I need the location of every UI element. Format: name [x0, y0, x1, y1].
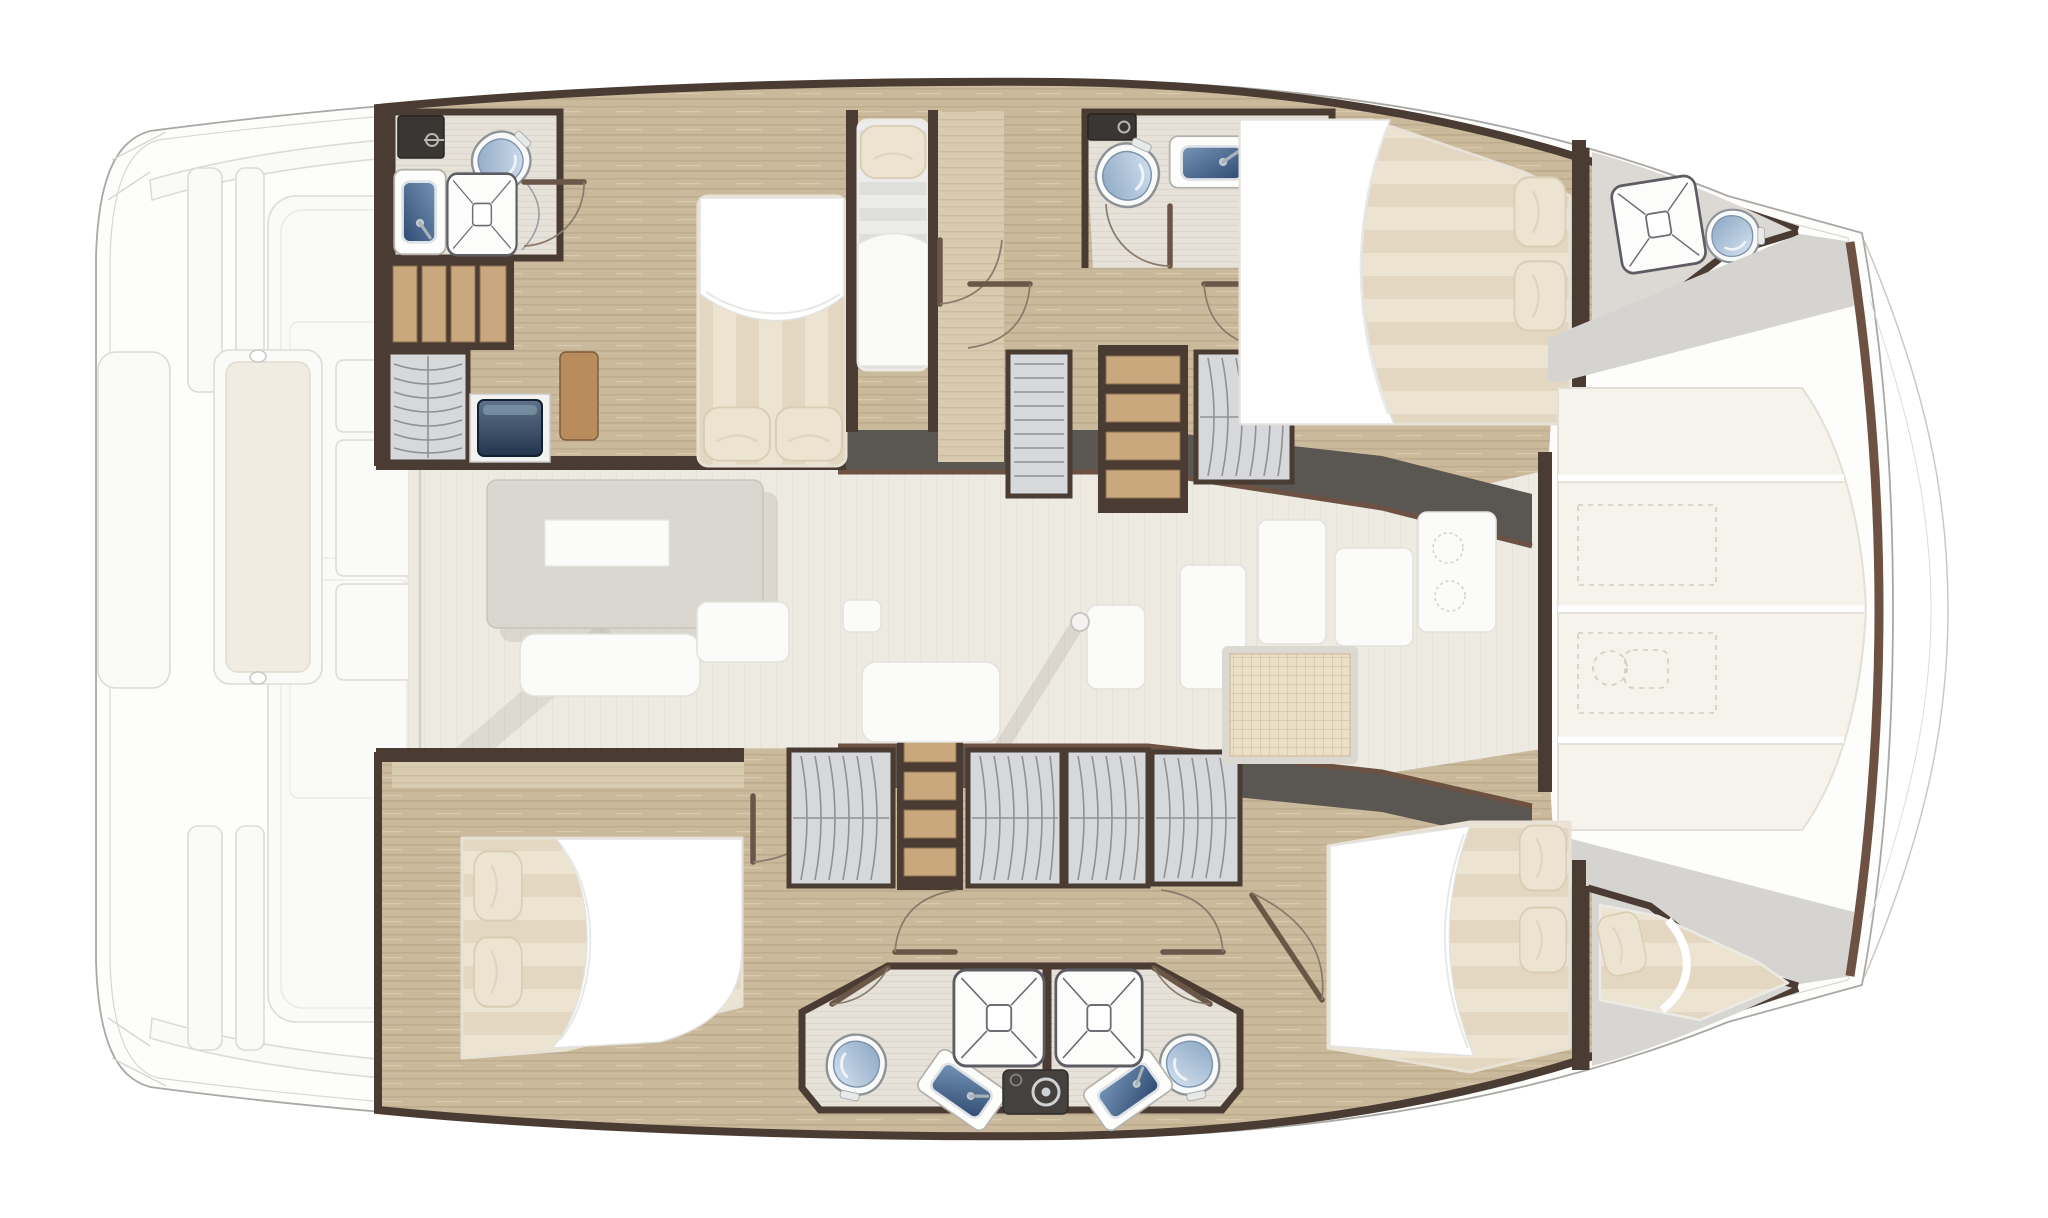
port-aft-head [392, 112, 584, 258]
cockpit-pillar [236, 826, 264, 1050]
stbd-forward-cabin [1328, 822, 1570, 1072]
stbd-companionway-stairs [897, 722, 963, 890]
sofa-module [843, 600, 881, 632]
shower [447, 174, 516, 256]
pillow [474, 937, 522, 1006]
port-nightstand [560, 352, 598, 440]
port-aft-berth [698, 196, 846, 466]
duvet [858, 234, 928, 367]
mast-post [1071, 613, 1089, 631]
stbd-aft-shelf-band [392, 762, 744, 788]
port-wardrobe-shelves [386, 258, 514, 350]
pillow [776, 407, 842, 460]
washing-machine [1003, 1070, 1068, 1114]
shower [1610, 174, 1707, 274]
port-single-berth [858, 120, 928, 370]
shower [1056, 970, 1142, 1066]
port-tv-unit [470, 394, 550, 462]
swim-platform-step [98, 352, 170, 688]
floor-plan-canvas [0, 0, 2048, 1218]
table-tray [545, 520, 669, 566]
galley-mat [1222, 646, 1358, 764]
port-berth-divider [846, 110, 858, 432]
salon-seat [862, 662, 1000, 742]
pillow [1520, 826, 1566, 891]
pillow [1514, 261, 1565, 330]
pillow [1514, 177, 1565, 246]
shower [954, 970, 1044, 1066]
salon-fwd-wall [1538, 452, 1552, 792]
stbd-hanging-locker [1152, 752, 1240, 884]
cleat [250, 350, 266, 362]
port-aft-hanging-locker [388, 352, 468, 462]
port-corridor-wall [928, 110, 938, 432]
stbd-hanging-locker [789, 750, 893, 886]
salon-bench [520, 634, 700, 696]
stbd-hanging-locker [1066, 750, 1148, 886]
aft-bench-cushion [226, 362, 310, 672]
sofa-module [697, 602, 789, 662]
tv-sheen [483, 405, 537, 415]
pillow [1520, 908, 1566, 973]
sink [394, 170, 446, 255]
port-companionway-stairs [1098, 345, 1188, 513]
salon-seat [1087, 605, 1145, 689]
pillow [474, 851, 522, 920]
port-louver-locker [1008, 352, 1070, 496]
cleat [250, 672, 266, 684]
stbd-aft-wall [376, 748, 744, 762]
galley-sink-unit [1418, 512, 1496, 632]
floor-plan-svg [0, 0, 2048, 1218]
duvet [700, 198, 844, 321]
pillow [861, 126, 926, 178]
cockpit-pillar [188, 826, 222, 1050]
pillow [704, 407, 770, 460]
port-corridor-floor [938, 112, 1004, 462]
stbd-hanging-locker [968, 750, 1062, 886]
